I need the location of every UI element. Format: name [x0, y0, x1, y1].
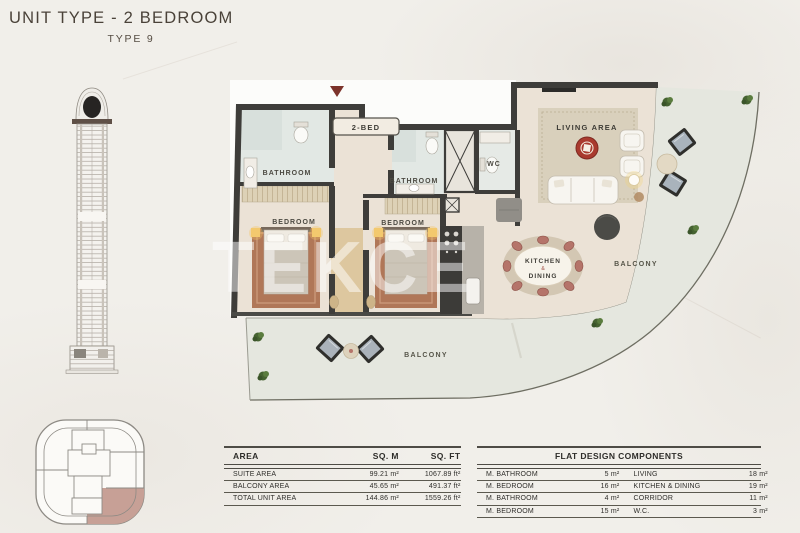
component-value: 11 m²	[727, 495, 770, 502]
brochure-page: UNIT TYPE - 2 BEDROOM TYPE 9	[0, 0, 800, 533]
component-label: W.C.	[619, 508, 727, 515]
tv-unit	[542, 88, 576, 92]
nightstand-lamp	[312, 228, 321, 237]
unit-badge-label: 2-BED	[352, 123, 381, 132]
area-table-col-sqm: SQ. M	[328, 451, 399, 461]
row-sqm: 45.65 m²	[328, 483, 399, 490]
table-row: M. BATHROOM 5 m² LIVING 18 m²	[477, 469, 761, 481]
tower-cap	[72, 88, 112, 124]
floor-plan: KITCHEN & DINING 2-BED	[230, 80, 770, 405]
area-table-col-area: AREA	[224, 451, 328, 461]
row-sqm: 99.21 m²	[328, 471, 399, 478]
round-table	[594, 214, 620, 240]
component-value: 4 m²	[577, 495, 620, 502]
component-label: KITCHEN & DINING	[619, 483, 727, 490]
table-row: M. BEDROOM 16 m² KITCHEN & DINING 19 m²	[477, 481, 761, 493]
row-sqft: 491.37 ft²	[399, 483, 461, 490]
pouf	[330, 296, 339, 309]
balcony-bottom-label: BALCONY	[404, 352, 448, 359]
bathroom-1-label: BATHROOM	[263, 170, 312, 177]
wc-label: WC	[487, 161, 501, 168]
area-table: AREA SQ. M SQ. FT SUITE AREA 99.21 m² 10…	[224, 446, 461, 506]
tower-base	[66, 346, 118, 374]
living-area-label: LIVING AREA	[556, 123, 617, 132]
row-sqft: 1559.26 ft²	[399, 495, 461, 502]
component-label: CORRIDOR	[619, 495, 727, 502]
table-row: M. BATHROOM 4 m² CORRIDOR 11 m²	[477, 493, 761, 505]
nightstand-lamp	[428, 228, 437, 237]
unit-badge: 2-BED	[333, 118, 399, 135]
marble-vein	[123, 41, 237, 79]
components-table-title: FLAT DESIGN COMPONENTS	[555, 451, 683, 461]
balcony-table	[657, 154, 677, 174]
component-value: 15 m²	[577, 508, 620, 515]
row-label: SUITE AREA	[224, 471, 328, 478]
bedroom-1-label: BEDROOM	[272, 219, 316, 226]
kitchen-dining-amp: &	[541, 266, 545, 272]
area-table-col-sqft: SQ. FT	[399, 451, 461, 461]
table-row: M. BEDROOM 15 m² W.C. 3 m²	[477, 506, 761, 518]
row-sqm: 144.86 m²	[328, 495, 399, 502]
page-subtitle: TYPE 9	[0, 33, 262, 45]
bedroom-2-label: BEDROOM	[381, 220, 425, 227]
pouf	[367, 296, 376, 309]
components-table-header: FLAT DESIGN COMPONENTS	[477, 446, 761, 465]
page-title: UNIT TYPE - 2 BEDROOM	[9, 9, 233, 28]
dried-plant	[634, 192, 644, 202]
tower-shaft	[77, 124, 107, 346]
components-table: FLAT DESIGN COMPONENTS M. BATHROOM 5 m² …	[477, 446, 761, 518]
component-value: 19 m²	[727, 483, 770, 490]
component-label: M. BATHROOM	[477, 495, 577, 502]
component-label: LIVING	[619, 471, 727, 478]
bedroom-1-furniture	[249, 226, 323, 308]
table-row: TOTAL UNIT AREA 144.86 m² 1559.26 ft²	[224, 493, 461, 505]
bed-blanket	[385, 250, 427, 294]
tower-band	[72, 119, 112, 124]
kitchen-sink	[466, 278, 480, 304]
component-value: 16 m²	[577, 483, 620, 490]
wardrobe-2	[385, 198, 445, 214]
component-value: 18 m²	[727, 471, 770, 478]
row-label: TOTAL UNIT AREA	[224, 495, 328, 502]
row-sqft: 1067.89 ft²	[399, 471, 461, 478]
row-label: BALCONY AREA	[224, 483, 328, 490]
balcony-right-label: BALCONY	[614, 261, 658, 268]
floor-lamp	[629, 175, 640, 186]
bed-blanket	[264, 250, 308, 294]
armchair	[620, 130, 644, 151]
dining-set: KITCHEN & DINING	[503, 236, 583, 296]
component-label: M. BATHROOM	[477, 471, 577, 478]
nightstand-lamp	[374, 228, 383, 237]
tower-elevation	[52, 86, 132, 378]
component-label: M. BEDROOM	[477, 483, 577, 490]
component-label: M. BEDROOM	[477, 508, 577, 515]
bedroom-2-furniture	[372, 226, 439, 308]
bathroom-1-shower	[240, 108, 282, 150]
key-plan	[30, 418, 150, 530]
wardrobe-1	[242, 186, 334, 202]
component-value: 5 m²	[577, 471, 620, 478]
area-table-header: AREA SQ. M SQ. FT	[224, 446, 461, 465]
bathroom-2-label: BATHROOM	[390, 178, 439, 185]
nightstand-lamp	[251, 228, 260, 237]
component-value: 3 m²	[727, 508, 770, 515]
kitchen-dining-label: DINING	[529, 273, 558, 280]
table-row: SUITE AREA 99.21 m² 1067.89 ft²	[224, 469, 461, 481]
table-row: BALCONY AREA 45.65 m² 491.37 ft²	[224, 481, 461, 493]
kitchen-dining-label: KITCHEN	[525, 258, 561, 265]
